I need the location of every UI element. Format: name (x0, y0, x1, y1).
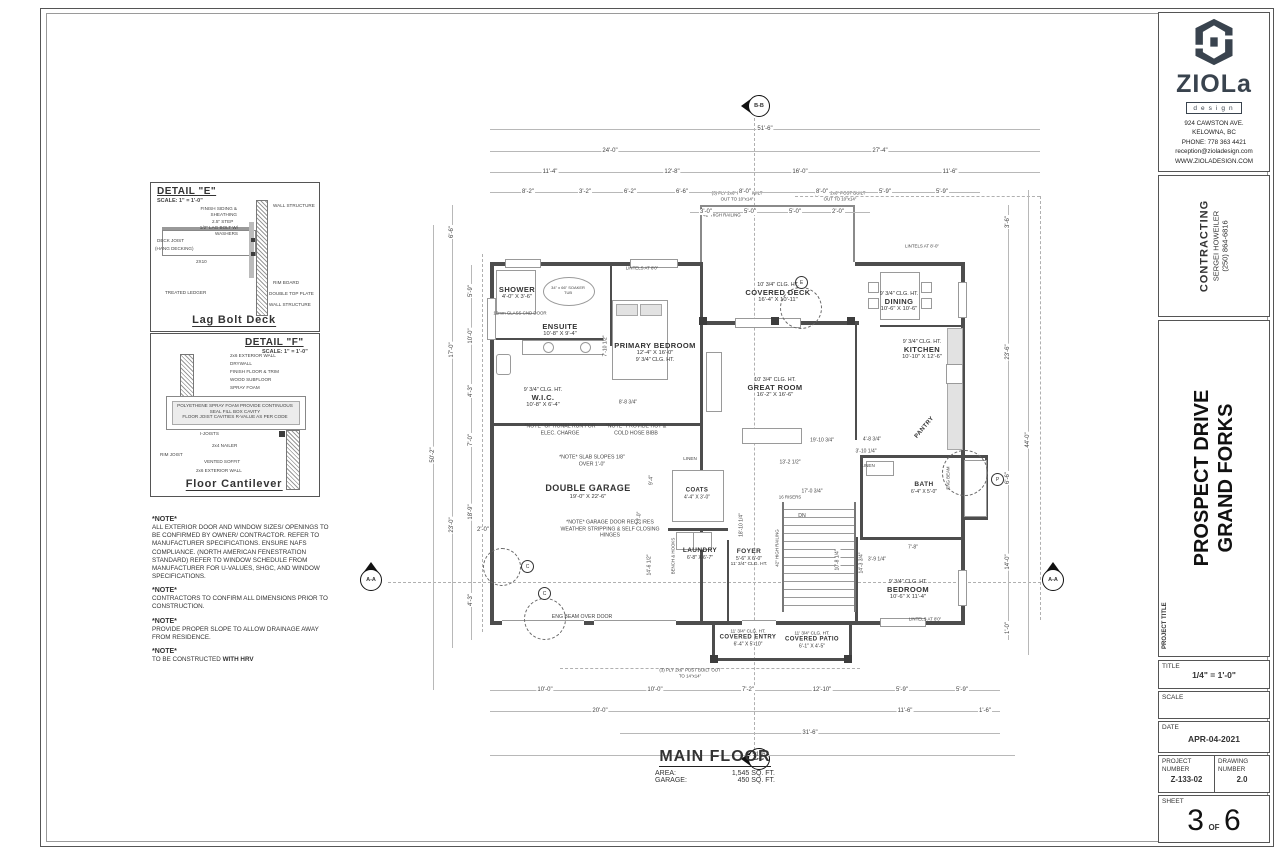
contractor-name: SERGEI HOWEILER (1212, 200, 1221, 292)
nailer-graphic (279, 431, 285, 437)
room-name: ENSUITE (542, 322, 577, 331)
room-ceiling: 11' 3/4" CLG. HT. (731, 562, 768, 568)
detail-label: DOUBLE TOP PLATE (269, 291, 315, 297)
dimension: 10'-0" (468, 327, 474, 344)
email-line: reception@zioladesign.com (1159, 147, 1269, 156)
detail-label: 2.5" STEP (212, 219, 233, 225)
project-title-line1: PROSPECT DRIVE (1190, 390, 1214, 567)
area-value: 1,545 SQ. FT. (732, 770, 775, 777)
annotation: ENG BEAM OVER DOOR (552, 614, 613, 621)
annotation: LINTELS AT 8'0" (626, 265, 659, 271)
section-marker-aa-left: A-A (360, 562, 382, 591)
detail-label: WOOD SUBFLOOR (230, 377, 271, 383)
annotation: LINEN (861, 463, 875, 469)
dimension: 6'-6" (1005, 471, 1011, 485)
dimension: 12'-10" (812, 687, 833, 693)
annotation: 16 RISERS (779, 494, 801, 500)
room-size: 10'-6" X 11'-4" (887, 594, 929, 601)
scale-label: SCALE (1162, 694, 1183, 701)
room-label-covered-entry: 11' 3/4" CLG. HT. COVERED ENTRY 6'-4" X … (720, 629, 777, 648)
detail-label: DRYWALL (230, 361, 252, 367)
wall (700, 262, 703, 504)
window (487, 298, 496, 340)
post (847, 317, 855, 325)
date-value: APR-04-2021 (1159, 734, 1269, 744)
dimension: 14'-3 3/4" (860, 551, 865, 574)
annotation: *NOTE* SLAB SLOPES 1/8" OVER 1'-0" (552, 455, 632, 468)
dimension: 3'-10 1/4" (854, 450, 877, 455)
project-title-line2: GRAND FORKS (1214, 390, 1238, 567)
general-notes: *NOTE* ALL EXTERIOR DOOR AND WINDOW SIZE… (152, 510, 336, 664)
toilet (496, 354, 511, 375)
sheet-label: SHEET (1162, 798, 1184, 805)
dimension: 8'-0" (738, 189, 752, 195)
dimension: 5'-9" (468, 284, 474, 298)
sofa (706, 352, 722, 412)
room-name: SHOWER (499, 285, 535, 294)
note-bold-text: WITH HRV (223, 656, 254, 663)
dimension: 17'-0 3/4" (800, 490, 823, 495)
dim-line (1028, 190, 1029, 655)
brand-subtitle: design (1186, 102, 1241, 114)
room-size: 4'-4" X 3'-0" (684, 495, 710, 501)
dimension: 3'-2" (578, 189, 592, 195)
room-size: 6'-8" X 6'-7" (683, 555, 717, 561)
note-body: CONTRACTORS TO CONFIRM ALL DIMENSIONS PR… (152, 595, 336, 611)
room-label-shower: SHOWER 4'-0" X 3'-6" (499, 285, 535, 301)
room-size: 5'-6" X 6'-0" (731, 556, 768, 562)
wall (668, 528, 728, 531)
room-size: 10'-10" X 12'-6" (902, 354, 942, 361)
website-line: WWW.ZIOLADESIGN.COM (1159, 157, 1269, 166)
dimension: 17'-0" (449, 341, 455, 358)
detail-reference-circle (483, 548, 521, 586)
detail-label: SPRAY FOAM (230, 385, 260, 391)
room-size: 12'-4" X 16'-0" (614, 350, 695, 357)
room-label-coats: COATS 4'-4" X 3'-0" (684, 487, 710, 500)
project-number-value: Z-133-02 (1159, 775, 1214, 784)
dimension: 7'-10 1/2" (604, 334, 609, 357)
garage-area-label: GARAGE: (655, 777, 687, 784)
wall (727, 540, 729, 625)
detail-label: WALL STRUCTURE (269, 302, 315, 308)
dimension: 11'-6" (942, 169, 959, 175)
sink (543, 342, 554, 353)
dimension: 23'-0" (638, 511, 643, 526)
front-door-opening (742, 620, 776, 628)
lag-bolt-graphic (251, 238, 255, 242)
dimension: 14'-6 1/2" (648, 553, 653, 576)
sheet-box: SHEET 3 OF 6 (1158, 795, 1270, 843)
room-size: 6'-1" X 4'-5" (785, 643, 839, 649)
detail-bubble-p: P (991, 473, 1004, 486)
wall (860, 537, 965, 540)
detail-label: 1/2" LAG BOLT W/ WASHERS (186, 225, 238, 236)
overhang-line (482, 254, 483, 632)
date-label: DATE (1162, 724, 1179, 731)
annotation: DN (798, 513, 806, 520)
dim-line (490, 711, 1000, 712)
dimension: 4'-3" (468, 384, 474, 398)
dimension: 6'-2" (623, 189, 637, 195)
sink (580, 342, 591, 353)
project-title-label: PROJECT TITLE (1162, 602, 1168, 649)
room-name: COATS (684, 487, 710, 494)
stairs (782, 502, 856, 612)
dimension: 27'-4" (871, 148, 888, 154)
room-size: 6'-4" X 5'-10" (720, 641, 777, 647)
dimension: 8'-8 3/4" (618, 401, 638, 406)
wall-section-graphic (286, 430, 300, 490)
dimension: 23'-0" (449, 516, 455, 533)
drawing-number-value: 2.0 (1215, 775, 1269, 784)
dimension: 5'-9" (895, 687, 909, 693)
dimension: 11'-4" (542, 169, 559, 175)
dimension: 10'-0" (536, 687, 553, 693)
dim-line (490, 192, 980, 193)
dimension: 1'-0" (1005, 621, 1011, 635)
detail-label: (HANG DECKING) (155, 246, 194, 252)
detail-label: POLYETHENE SPRAY FOAM PROVIDE CONTINUOUS… (176, 403, 294, 414)
detail-label: VENTED SOFFIT (204, 459, 240, 465)
chair (868, 298, 879, 309)
plan-caption: MAIN FLOOR AREA: 1,545 SQ. FT. GARAGE: 4… (655, 748, 775, 784)
dimension: 10'-8 1/4" (836, 548, 841, 571)
room-name: LAUNDRY (683, 547, 717, 555)
room-name: COVERED PATIO (785, 636, 839, 643)
section-bubble: A-A (1042, 569, 1064, 591)
window (505, 259, 541, 268)
room-name: FOYER (731, 548, 768, 556)
dimension: 12'-8" (663, 169, 680, 175)
dimension: 7'-8" (907, 546, 919, 551)
numbers-box: PROJECT NUMBER Z-133-02 DRAWING NUMBER 2… (1158, 755, 1270, 793)
dimension: 20'-0" (591, 708, 608, 714)
detail-bubble-c: C (521, 560, 534, 573)
room-name: PRIMARY BEDROOM (614, 341, 695, 350)
sheet-total: 6 (1224, 804, 1241, 837)
dimension: 8'-2" (521, 189, 535, 195)
dimension: 5'-9" (878, 189, 892, 195)
date-box: DATE APR-04-2021 (1158, 721, 1270, 753)
room-name: KITCHEN (902, 345, 942, 354)
detail-label: FLOOR JOIST CAVITIES R-VALUE AS PER CODE (182, 414, 288, 420)
post (699, 317, 707, 325)
dimension: 11'-6" (897, 708, 914, 714)
room-label-kitchen: 9' 3/4" CLG. HT. KITCHEN 10'-10" X 12'-6… (902, 339, 942, 361)
note-heading: *NOTE* (152, 648, 336, 655)
dimension: 18'-9" (468, 503, 474, 520)
note-heading: *NOTE* (152, 618, 336, 625)
phone-line: PHONE: 778 363 4421 (1159, 138, 1269, 147)
wall (880, 325, 965, 327)
deck-railing (700, 205, 855, 207)
title-box: TITLE 1/4" = 1'-0" (1158, 660, 1270, 689)
dimension: 5'-0" (788, 209, 802, 215)
detail-label: FINISH FLOOR & TRIM (230, 369, 279, 375)
room-name: COVERED ENTRY (720, 634, 777, 641)
detail-label: RIM JOIST (160, 452, 183, 458)
room-label-wic: 9' 3/4" CLG. HT. W.I.C. 10'-8" X 6'-4" (524, 387, 563, 409)
wall (712, 658, 852, 661)
area-label: AREA: (655, 770, 676, 777)
room-name: BEDROOM (887, 585, 929, 594)
kitchen-counter (947, 328, 963, 450)
note-heading: *NOTE* (152, 587, 336, 594)
room-label-bedroom: 9' 3/4" CLG. HT. BEDROOM 10'-6" X 11'-4" (887, 579, 929, 601)
dim-line (1008, 205, 1009, 640)
dimension: 1'-6" (978, 708, 992, 714)
detail-e-heading: DETAIL "E" (157, 186, 216, 197)
dim-line (490, 151, 1040, 152)
dimension: 51'-6" (756, 126, 773, 132)
dimension: 7'-0" (468, 433, 474, 447)
detail-e-scale: SCALE: 1" = 1'-0" (157, 198, 203, 204)
chair (921, 282, 932, 293)
dimension: 14'-0" (1005, 553, 1011, 570)
contracting-heading: CONTRACTING (1199, 200, 1211, 292)
garage-area-value: 450 SQ. FT. (738, 777, 775, 784)
dimension: 16'-0" (791, 169, 808, 175)
annotation: 42" HIGH RAILING (774, 529, 780, 566)
dimension: 23'-6" (1005, 343, 1011, 360)
detail-e-caption: Lag Bolt Deck (192, 314, 276, 327)
room-size: 10'-8" X 6'-4" (524, 402, 563, 409)
dimension: 19'-10 3/4" (809, 439, 835, 444)
plan-title: MAIN FLOOR (659, 748, 770, 767)
detail-label: I-JOISTS (200, 431, 219, 437)
deck-railing (853, 205, 855, 262)
dimension: 10'-0" (646, 687, 663, 693)
dimension: 9'-4" (650, 474, 655, 486)
room-size: 4'-0" X 3'-6" (499, 294, 535, 301)
annotation: LINEN (683, 456, 697, 462)
dimension: 6'-6" (675, 189, 689, 195)
post (844, 655, 852, 663)
annotation: LINTELS AT 8'-0" (905, 243, 939, 249)
room-size: 16'-4" X 10'-11" (745, 297, 810, 304)
dimension: 50'-2" (430, 446, 436, 463)
dimension: 7'-2" (741, 687, 755, 693)
room-size: 10'-8" X 9'-4" (542, 331, 577, 338)
detail-f-caption: Floor Cantilever (186, 478, 283, 491)
dimension: 5'-0" (743, 209, 757, 215)
room-label-laundry: LAUNDRY 6'-8" X 6'-7" (683, 547, 717, 561)
contracting-block: CONTRACTING SERGEI HOWEILER (250) 864-68… (1158, 175, 1270, 317)
section-marker-aa-right: A-A (1042, 562, 1064, 591)
annotation: LINTELS AT 8'0" (909, 616, 942, 622)
dimension: 2'-0" (476, 527, 490, 533)
room-label-foyer: FOYER 5'-6" X 6'-0" 11' 3/4" CLG. HT. (731, 548, 768, 568)
dimension: 31'-6" (801, 730, 818, 736)
dimension: 2'-0" (831, 209, 845, 215)
room-size: 10'-6" X 10'-6" (880, 306, 919, 313)
room-label-ensuite: ENSUITE 10'-8" X 9'-4" (542, 322, 577, 338)
annotation: *NOTE* PROVIDE HOT & COLD HOSE BIBB (603, 424, 669, 437)
address-line: 924 CAWSTON AVE. (1159, 119, 1269, 128)
dimension: 3'-9 1/4" (867, 558, 887, 563)
detail-label: 2x6 EXTERIOR WALL (230, 353, 276, 359)
sofa (742, 428, 802, 444)
detail-label: WALL STRUCTURE (273, 203, 315, 209)
address-line: KELOWNA, BC (1159, 128, 1269, 137)
room-name: DINING (880, 297, 919, 306)
section-line-aa (388, 582, 1046, 583)
sheet-of: OF (1208, 823, 1219, 832)
note-body: TO BE CONSTRUCTED WITH HRV (152, 656, 336, 664)
garage-door-opening (594, 620, 676, 628)
room-ceiling: 9' 3/4" CLG. HT. (614, 357, 695, 363)
project-title-block: PROSPECT DRIVE GRAND FORKS PROJECT TITLE (1158, 320, 1270, 657)
dimension: 18'-10 1/4" (740, 512, 745, 538)
scale-box: SCALE (1158, 691, 1270, 719)
dimension: 5'-9" (935, 189, 949, 195)
wall (965, 517, 987, 520)
room-label-great-room: 10' 3/4" CLG. HT. GREAT ROOM 16'-2" X 16… (747, 377, 802, 399)
detail-label: TREATED LEDGER (165, 290, 206, 296)
room-size: 19'-0" X 22'-6" (545, 494, 630, 501)
room-name: W.I.C. (524, 393, 563, 402)
room-name: COVERED DECK (745, 288, 810, 297)
brand-name: ZIOLa (1159, 72, 1269, 97)
annotation: 34" x 66" SOAKER TUB (547, 285, 589, 295)
annotation: ENG BEAM (945, 466, 951, 489)
room-size: 16'-2" X 16'-6" (747, 392, 802, 399)
detail-label: FINISH SIDING & SHEATHING (181, 206, 237, 217)
logo-block: ZIOLa design 924 CAWSTON AVE. KELOWNA, B… (1158, 12, 1270, 172)
room-name: BATH (911, 481, 937, 489)
project-number-label: PROJECT NUMBER (1159, 756, 1214, 773)
dimension: 3'-0" (699, 209, 713, 215)
wall (855, 262, 965, 266)
room-name: GREAT ROOM (747, 383, 802, 392)
detail-bubble-c: C (538, 587, 551, 600)
chair (921, 298, 932, 309)
dimension: 44'-0" (1025, 431, 1031, 448)
detail-label: 2x6 EXTERIOR WALL (196, 468, 242, 474)
section-bubble: B-B (748, 95, 770, 117)
note-heading: *NOTE* (152, 516, 336, 523)
dimension: 8'-0" (815, 189, 829, 195)
annotation: *NOTE* GARAGE DOOR REQUIRES WEATHER STRI… (558, 519, 662, 539)
annotation: (3) PLY 2x6" POST BUILT OUT TO 14"x14" (659, 668, 721, 679)
dim-line (471, 265, 472, 640)
section-bubble: A-A (360, 569, 382, 591)
dimension: 5'-9" (955, 687, 969, 693)
dimension: 4'-8 3/4" (862, 438, 882, 443)
note-body: PROVIDE PROPER SLOPE TO ALLOW DRAINAGE A… (152, 626, 336, 642)
detail-label: 2X10 (196, 259, 207, 265)
pillow (616, 304, 638, 316)
detail-f-heading: DETAIL "F" (245, 337, 304, 348)
title-label: TITLE (1162, 663, 1180, 670)
room-label-covered-patio: 11' 3/4" CLG. HT. COVERED PATIO 6'-1" X … (785, 631, 839, 650)
room-size: 6'-4" X 5'-0" (911, 489, 937, 495)
room-label-double-garage: DOUBLE GARAGE 19'-0" X 22'-6" (545, 483, 630, 501)
dimension: 13'-2 1/2" (778, 461, 801, 466)
post (771, 317, 779, 325)
wall-section-graphic (256, 200, 268, 316)
dim-line (452, 205, 453, 648)
range (946, 364, 963, 384)
detail-label: 2x4 NAILER (212, 443, 237, 449)
ledger-graphic (249, 222, 254, 278)
title-value: 1/4" = 1'-0" (1159, 670, 1269, 680)
wall-section-graphic (180, 354, 194, 398)
lag-bolt-graphic (251, 252, 255, 256)
contractor-phone: (250) 864-6816 (1221, 200, 1230, 292)
room-label-primary-bedroom: PRIMARY BEDROOM 12'-4" X 16'-0" 9' 3/4" … (614, 341, 695, 363)
drawing-number-label: DRAWING NUMBER (1215, 756, 1269, 773)
chair (868, 282, 879, 293)
sheet-number: 3 (1187, 804, 1204, 837)
detail-label: DECK JOIST (157, 238, 184, 244)
section-marker-bb-top: B-B (741, 95, 770, 117)
dimension: 24'-0" (601, 148, 618, 154)
dimension: 4'-3" (468, 593, 474, 607)
ziola-logo-icon (1186, 17, 1242, 67)
vanity (522, 340, 608, 355)
annotation: *NOTE* OPTIONAL RUN FOR ELEC. CHARGE (520, 424, 600, 437)
dimension: 6'-6" (449, 225, 455, 239)
pillow (640, 304, 662, 316)
overhang-line (1040, 196, 1041, 620)
detail-label: RIM BOARD (273, 280, 299, 286)
room-label-bath: BATH 6'-4" X 5'-0" (911, 481, 937, 495)
window (958, 282, 967, 318)
wall (855, 325, 857, 440)
note-body: ALL EXTERIOR DOOR AND WINDOW SIZES/ OPEN… (152, 524, 336, 581)
annotation: 12mm GLASS CND DOOR (493, 310, 546, 316)
drawing-sheet: { "title_block": { "logo": { "brand": "Z… (0, 0, 1280, 853)
dimension: 3'-6" (1005, 215, 1011, 229)
annotation: BENCH & HOOKS (670, 538, 676, 575)
room-label-covered-deck: 10' 3/4" CLG. HT. COVERED DECK 16'-4" X … (745, 282, 810, 304)
post (710, 655, 718, 663)
room-name: DOUBLE GARAGE (545, 483, 630, 494)
room-label-dining: 9' 3/4" CLG. HT. DINING 10'-6" X 10'-6" (880, 291, 919, 313)
window (958, 570, 967, 606)
